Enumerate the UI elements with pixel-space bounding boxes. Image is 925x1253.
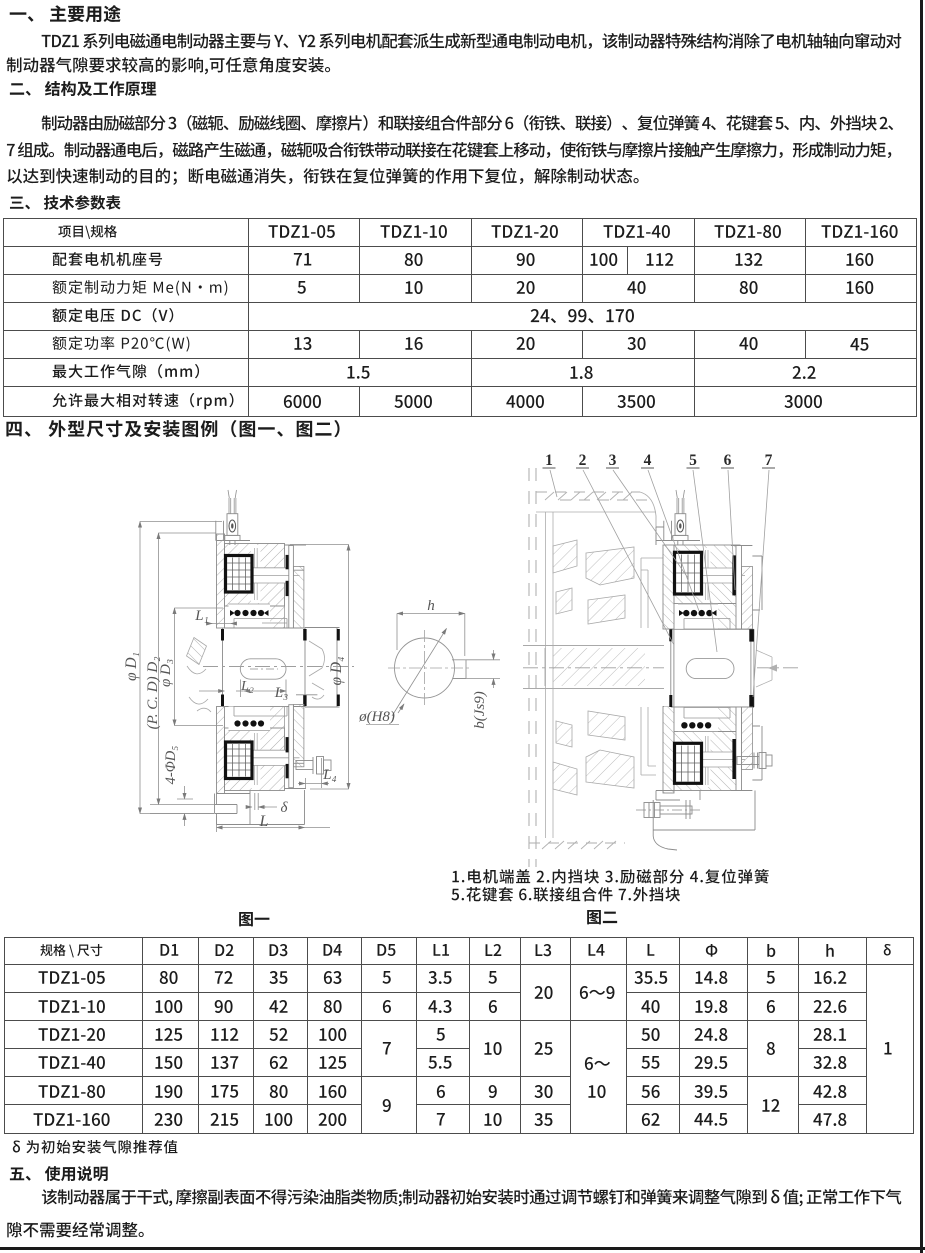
svg-text:φ D₃: φ D₃ <box>158 659 174 687</box>
svg-text:7: 7 <box>765 452 773 469</box>
svg-text:6: 6 <box>724 452 732 469</box>
svg-text:1: 1 <box>545 452 553 469</box>
svg-text:ø(H8): ø(H8) <box>358 709 395 725</box>
svg-text:φ D₁: φ D₁ <box>123 652 140 681</box>
svg-text:φ D₄: φ D₄ <box>328 656 345 685</box>
svg-text:L₃: L₃ <box>274 685 289 701</box>
svg-text:b(Js9): b(Js9) <box>472 691 488 729</box>
svg-text:L₁: L₁ <box>194 608 209 624</box>
svg-text:L₂: L₂ <box>240 679 254 694</box>
svg-text:L₄: L₄ <box>322 767 337 783</box>
svg-text:3: 3 <box>609 452 617 469</box>
svg-text:L: L <box>259 813 269 830</box>
svg-text:2: 2 <box>579 452 587 469</box>
svg-text:h: h <box>427 598 435 614</box>
svg-text:4: 4 <box>644 452 652 469</box>
svg-text:5: 5 <box>689 452 697 469</box>
svg-text:δ: δ <box>281 800 289 816</box>
svg-text:4-ΦD₅: 4-ΦD₅ <box>163 746 179 785</box>
